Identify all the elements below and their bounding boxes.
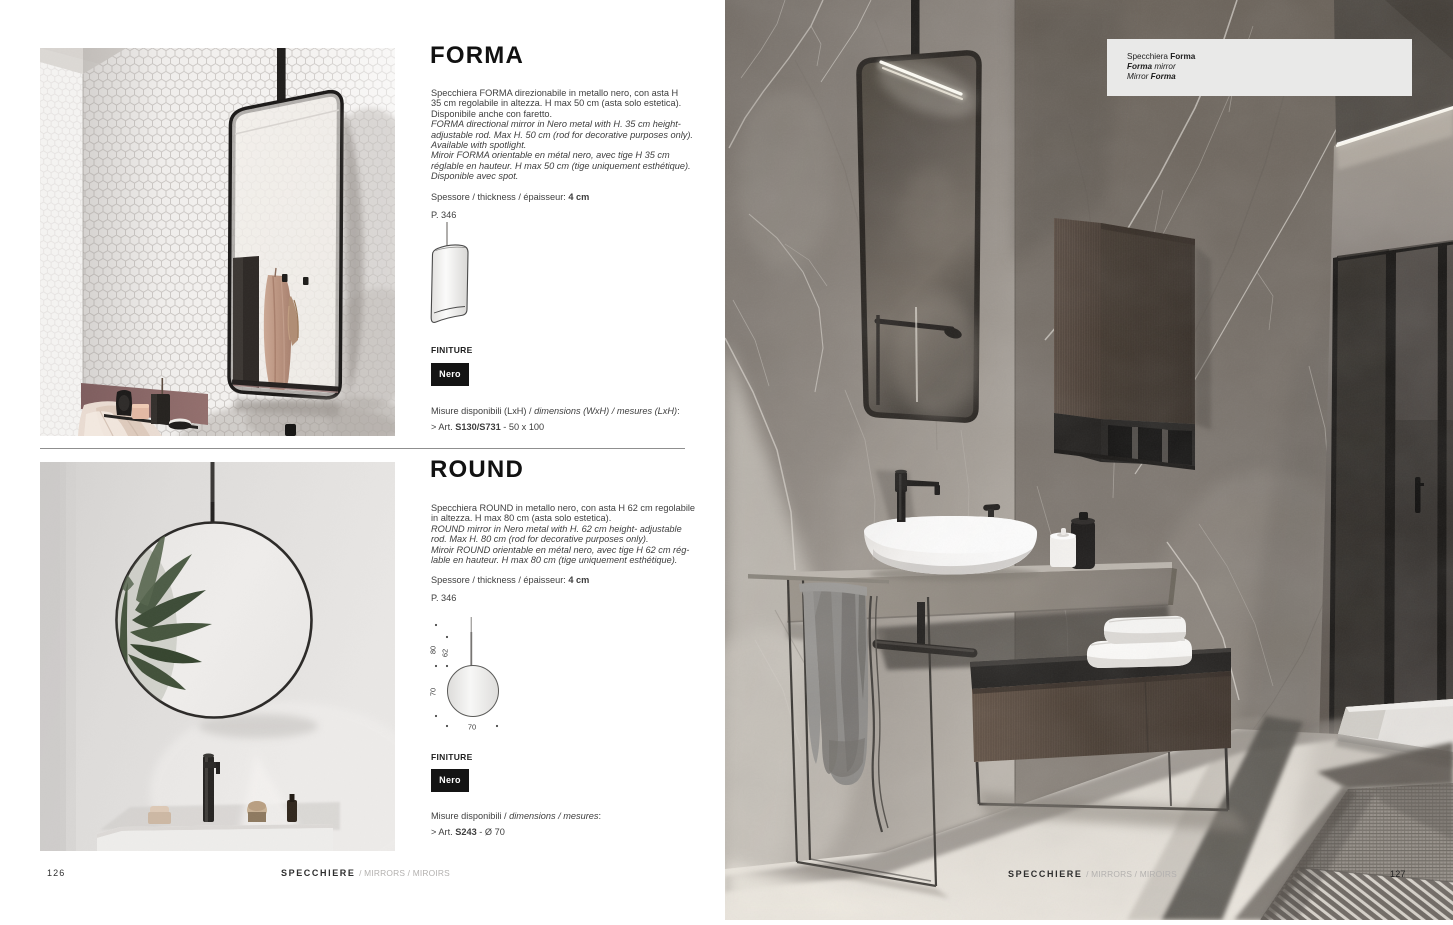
svg-text:62: 62 <box>441 649 450 657</box>
svg-text:80: 80 <box>429 646 438 654</box>
svg-text:70: 70 <box>429 688 438 696</box>
svg-text:70: 70 <box>468 723 476 732</box>
